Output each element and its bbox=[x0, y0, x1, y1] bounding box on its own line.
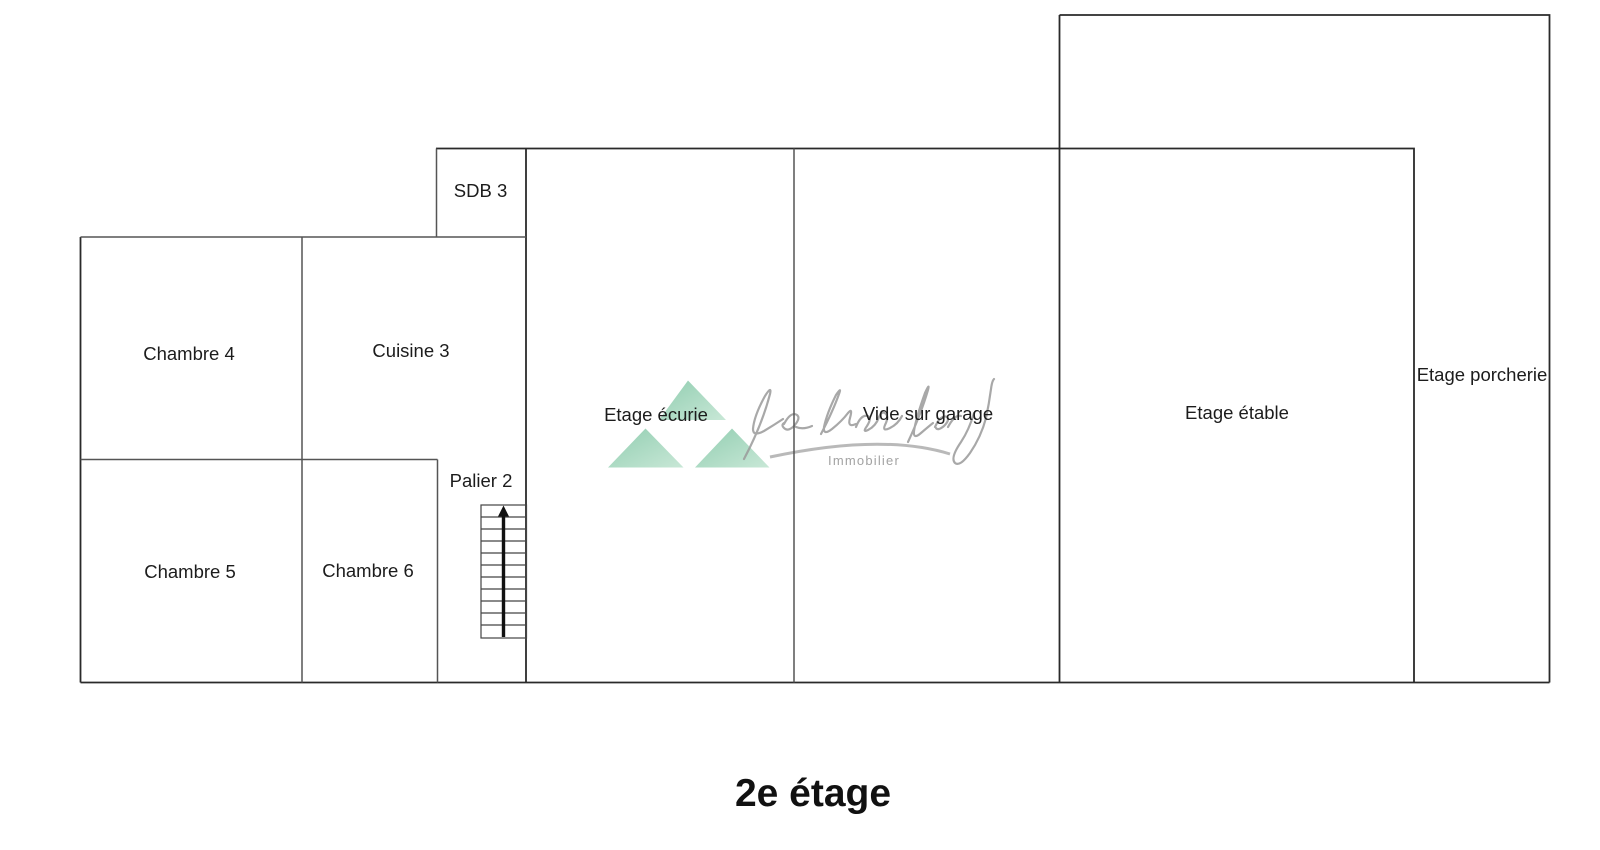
svg-text:Chambre 6: Chambre 6 bbox=[322, 560, 414, 581]
svg-text:Cuisine 3: Cuisine 3 bbox=[372, 340, 449, 361]
svg-text:2e étage: 2e étage bbox=[735, 772, 891, 815]
svg-text:Etage écurie: Etage écurie bbox=[604, 404, 708, 425]
svg-text:Etage étable: Etage étable bbox=[1185, 402, 1289, 423]
svg-text:Etage porcherie: Etage porcherie bbox=[1417, 364, 1548, 385]
svg-text:Palier 2: Palier 2 bbox=[450, 470, 513, 491]
svg-text:Immobilier: Immobilier bbox=[828, 453, 900, 468]
svg-text:Chambre 5: Chambre 5 bbox=[144, 561, 236, 582]
svg-text:Chambre 4: Chambre 4 bbox=[143, 343, 235, 364]
svg-text:Vide sur garage: Vide sur garage bbox=[863, 403, 993, 424]
svg-text:SDB 3: SDB 3 bbox=[454, 180, 507, 201]
